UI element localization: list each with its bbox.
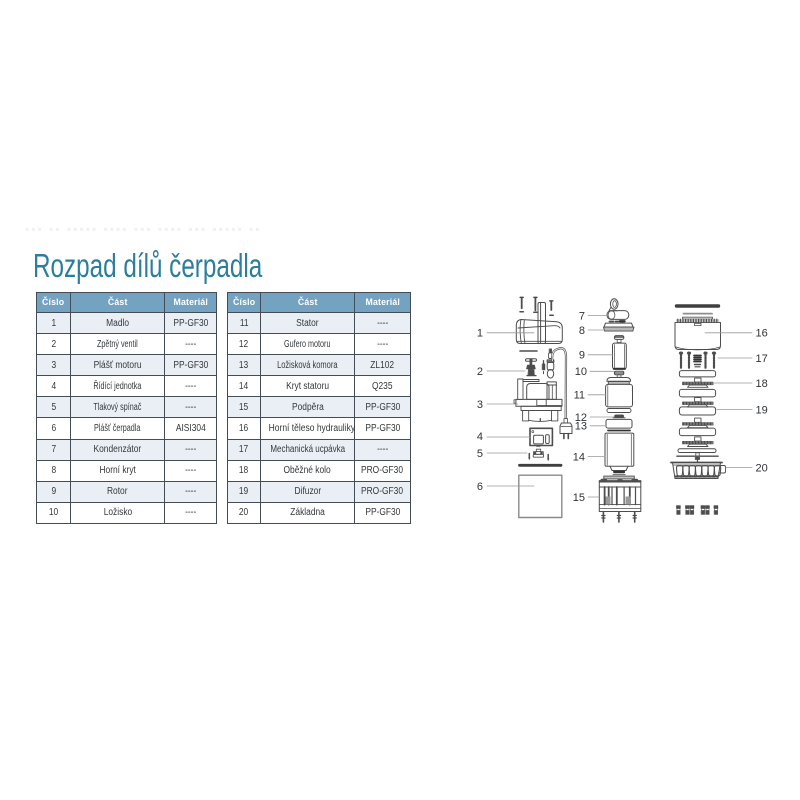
svg-text:14: 14 <box>573 451 585 463</box>
svg-text:1: 1 <box>477 328 483 340</box>
svg-text:15: 15 <box>573 492 585 504</box>
svg-text:3: 3 <box>477 399 483 411</box>
svg-text:9: 9 <box>579 350 585 362</box>
svg-text:16: 16 <box>756 328 768 340</box>
svg-text:2: 2 <box>477 366 483 378</box>
svg-text:18: 18 <box>756 378 768 390</box>
svg-text:11: 11 <box>574 390 585 402</box>
svg-text:19: 19 <box>756 405 768 417</box>
svg-text:4: 4 <box>477 431 483 443</box>
svg-text:20: 20 <box>756 463 768 475</box>
svg-text:7: 7 <box>579 311 585 323</box>
svg-text:5: 5 <box>477 448 483 460</box>
svg-text:10: 10 <box>575 366 587 378</box>
svg-text:8: 8 <box>579 325 585 337</box>
svg-text:17: 17 <box>756 353 768 365</box>
svg-text:6: 6 <box>477 481 483 493</box>
svg-text:13: 13 <box>575 421 587 433</box>
